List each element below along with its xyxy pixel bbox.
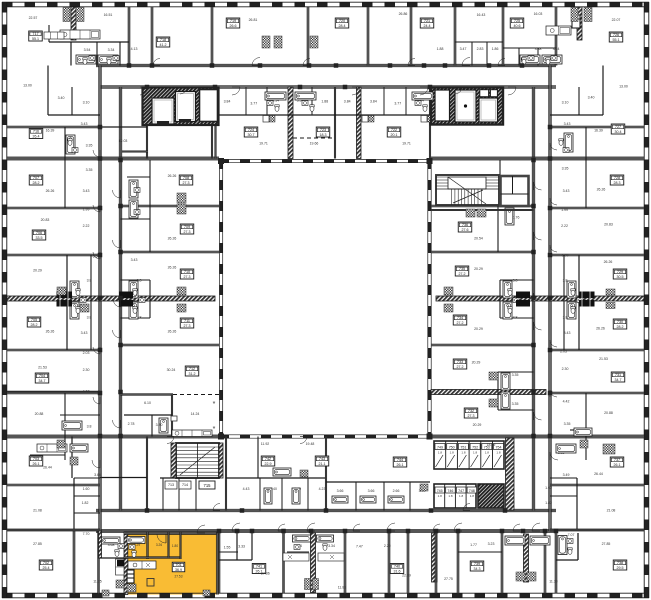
svg-text:731: 731 — [615, 373, 621, 377]
svg-text:1.55: 1.55 — [224, 546, 231, 550]
svg-text:20.88: 20.88 — [35, 412, 44, 416]
svg-text:725: 725 — [514, 19, 520, 23]
svg-text:26.81: 26.81 — [249, 18, 258, 22]
svg-text:716: 716 — [33, 130, 39, 134]
svg-text:3.35: 3.35 — [86, 168, 93, 172]
svg-text:3.10: 3.10 — [562, 101, 569, 105]
svg-text:1.88: 1.88 — [321, 100, 328, 104]
svg-text:20.29: 20.29 — [474, 327, 483, 331]
svg-text:7.70: 7.70 — [83, 532, 90, 536]
svg-text:7.47: 7.47 — [356, 545, 363, 549]
svg-text:726: 726 — [613, 33, 619, 37]
svg-text:40.6: 40.6 — [514, 24, 521, 28]
svg-text:3.35: 3.35 — [512, 373, 519, 377]
svg-text:3.47: 3.47 — [460, 47, 467, 51]
svg-text:34.7: 34.7 — [39, 379, 46, 383]
svg-text:3.40: 3.40 — [58, 96, 65, 100]
svg-text:34.7: 34.7 — [615, 378, 622, 382]
svg-text:709: 709 — [184, 225, 190, 229]
svg-text:27.3: 27.3 — [184, 275, 191, 279]
svg-text:27.2: 27.2 — [459, 272, 466, 276]
svg-text:19.48: 19.48 — [306, 442, 315, 446]
svg-text:734: 734 — [457, 316, 463, 320]
svg-text:3.43: 3.43 — [81, 331, 88, 335]
svg-text:55.1: 55.1 — [32, 37, 39, 41]
svg-text:41.2: 41.2 — [160, 43, 167, 47]
svg-text:20.88: 20.88 — [604, 411, 613, 415]
svg-text:13.00: 13.00 — [619, 85, 628, 89]
svg-text:1.99: 1.99 — [83, 208, 90, 212]
svg-text:31.6: 31.6 — [394, 570, 401, 574]
svg-text:708: 708 — [183, 176, 189, 180]
svg-text:4.23: 4.23 — [319, 487, 326, 491]
svg-text:16.39: 16.39 — [46, 129, 55, 133]
svg-text:24.4: 24.4 — [424, 24, 431, 28]
svg-text:1.76: 1.76 — [513, 216, 520, 220]
svg-text:2.22: 2.22 — [83, 224, 90, 228]
svg-text:3.26: 3.26 — [156, 543, 162, 547]
svg-text:20.29: 20.29 — [33, 269, 42, 273]
svg-text:707: 707 — [33, 176, 39, 180]
svg-text:710: 710 — [184, 270, 190, 274]
svg-text:26.44: 26.44 — [43, 466, 52, 470]
svg-text:31.2: 31.2 — [189, 372, 196, 376]
svg-text:3.84: 3.84 — [344, 100, 351, 104]
svg-text:14.24: 14.24 — [191, 412, 200, 416]
svg-text:30.7: 30.7 — [248, 133, 255, 137]
svg-text:1.8: 1.8 — [461, 450, 466, 454]
svg-text:11.92: 11.92 — [261, 442, 270, 446]
svg-text:28.2: 28.2 — [617, 325, 624, 329]
svg-text:33.5: 33.5 — [36, 236, 43, 240]
svg-text:18.59: 18.59 — [487, 443, 496, 447]
svg-text:2.78: 2.78 — [128, 422, 135, 426]
svg-text:724: 724 — [248, 128, 254, 132]
svg-text:1.8: 1.8 — [448, 494, 453, 498]
svg-text:727: 727 — [615, 125, 621, 129]
svg-text:27.36: 27.36 — [261, 572, 270, 576]
svg-text:3.49: 3.49 — [563, 473, 570, 477]
svg-text:1.80: 1.80 — [172, 544, 178, 548]
svg-text:749: 749 — [437, 445, 443, 449]
svg-text:1.8: 1.8 — [485, 450, 490, 454]
svg-text:3.8: 3.8 — [87, 316, 92, 320]
svg-text:3.8: 3.8 — [87, 279, 92, 283]
svg-text:738: 738 — [617, 561, 623, 565]
svg-text:742: 742 — [265, 457, 271, 461]
svg-text:30.24: 30.24 — [167, 368, 176, 372]
svg-text:3.84: 3.84 — [224, 100, 231, 104]
svg-text:717: 717 — [32, 32, 38, 36]
svg-text:1.8: 1.8 — [438, 494, 443, 498]
svg-text:1.60: 1.60 — [83, 487, 90, 491]
svg-text:20.1: 20.1 — [391, 133, 398, 137]
svg-text:26.26: 26.26 — [46, 189, 55, 193]
svg-text:22.09: 22.09 — [402, 574, 411, 578]
svg-text:26.26: 26.26 — [596, 327, 605, 331]
svg-text:6.09: 6.09 — [562, 254, 569, 258]
svg-text:27.3: 27.3 — [183, 181, 190, 185]
svg-text:1.86: 1.86 — [492, 47, 499, 51]
svg-text:714: 714 — [182, 483, 188, 487]
svg-text:26.44: 26.44 — [594, 472, 603, 476]
svg-text:746: 746 — [447, 489, 453, 493]
svg-text:26.26: 26.26 — [597, 188, 606, 192]
svg-text:*: * — [213, 426, 216, 433]
svg-text:26.4: 26.4 — [33, 135, 40, 139]
svg-text:20.29: 20.29 — [474, 267, 483, 271]
svg-text:3.33: 3.33 — [238, 545, 245, 549]
svg-text:713: 713 — [168, 483, 174, 487]
svg-text:736: 736 — [462, 223, 468, 227]
svg-text:22.57: 22.57 — [29, 16, 38, 20]
svg-text:748: 748 — [469, 489, 475, 493]
svg-text:2.03: 2.03 — [83, 351, 90, 355]
svg-text:2.22: 2.22 — [561, 224, 568, 228]
svg-text:4.13: 4.13 — [131, 47, 138, 51]
svg-text:751: 751 — [460, 445, 466, 449]
svg-text:27.2: 27.2 — [457, 321, 464, 325]
svg-text:16.43: 16.43 — [477, 13, 486, 17]
svg-text:712: 712 — [189, 367, 195, 371]
svg-text:27.3: 27.3 — [184, 324, 191, 328]
svg-text:13.00: 13.00 — [23, 84, 32, 88]
svg-text:3.35: 3.35 — [512, 402, 519, 406]
svg-text:11.81: 11.81 — [338, 586, 347, 590]
svg-text:21.53: 21.53 — [38, 366, 47, 370]
svg-text:3.24: 3.24 — [553, 47, 560, 51]
svg-text:730: 730 — [617, 320, 623, 324]
svg-text:704: 704 — [39, 374, 45, 378]
svg-text:36.9: 36.9 — [175, 568, 182, 572]
svg-text:26.6: 26.6 — [230, 24, 237, 28]
svg-text:728: 728 — [614, 176, 620, 180]
svg-text:26.26: 26.26 — [168, 174, 177, 178]
svg-text:3.35: 3.35 — [86, 144, 93, 148]
svg-text:1.8: 1.8 — [470, 494, 475, 498]
svg-text:2.83: 2.83 — [477, 47, 484, 51]
svg-text:28.2: 28.2 — [33, 181, 40, 185]
svg-text:26.1: 26.1 — [33, 462, 40, 466]
svg-text:3.43: 3.43 — [81, 122, 88, 126]
svg-text:20.29: 20.29 — [472, 361, 481, 365]
svg-text:3.80: 3.80 — [156, 423, 163, 427]
svg-text:22.9: 22.9 — [265, 462, 272, 466]
svg-text:20.54: 20.54 — [474, 237, 483, 241]
svg-text:28.2: 28.2 — [31, 323, 38, 327]
svg-text:1.92: 1.92 — [545, 486, 552, 490]
svg-text:1.8: 1.8 — [473, 450, 478, 454]
svg-text:3.35: 3.35 — [562, 167, 569, 171]
svg-text:20.83: 20.83 — [41, 218, 50, 222]
svg-text:744: 744 — [397, 458, 403, 462]
svg-text:3.8: 3.8 — [513, 316, 518, 320]
svg-text:27.2: 27.2 — [457, 365, 464, 369]
svg-text:735: 735 — [459, 267, 465, 271]
svg-text:16.03: 16.03 — [534, 12, 543, 16]
svg-text:27.75: 27.75 — [444, 577, 453, 581]
svg-text:16.39: 16.39 — [594, 129, 603, 133]
svg-text:722: 722 — [391, 128, 397, 132]
svg-text:26.1: 26.1 — [397, 463, 404, 467]
svg-text:4.42: 4.42 — [563, 400, 570, 404]
svg-text:11.25: 11.25 — [93, 580, 102, 584]
svg-text:721: 721 — [424, 19, 430, 23]
svg-text:740: 740 — [394, 565, 400, 569]
svg-text:28.4: 28.4 — [339, 24, 346, 28]
svg-text:3.8: 3.8 — [87, 425, 92, 429]
svg-text:741: 741 — [256, 565, 262, 569]
svg-text:19.66: 19.66 — [310, 142, 319, 146]
svg-text:4.43: 4.43 — [243, 487, 250, 491]
svg-text:739: 739 — [474, 562, 480, 566]
svg-text:3.43: 3.43 — [564, 331, 571, 335]
svg-text:26.26: 26.26 — [46, 330, 55, 334]
svg-text:7.07: 7.07 — [568, 533, 575, 537]
svg-text:719: 719 — [230, 19, 236, 23]
svg-text:27.53: 27.53 — [175, 575, 183, 579]
svg-text:3.77: 3.77 — [250, 101, 257, 105]
svg-text:11.30: 11.30 — [549, 580, 558, 584]
svg-text:21.1: 21.1 — [319, 462, 326, 466]
svg-text:21.08: 21.08 — [33, 509, 42, 513]
svg-text:1.82: 1.82 — [545, 501, 552, 505]
svg-text:1.77: 1.77 — [470, 543, 477, 547]
svg-text:20.83: 20.83 — [604, 223, 613, 227]
svg-text:1.82: 1.82 — [82, 501, 89, 505]
svg-text:3.10: 3.10 — [83, 101, 90, 105]
svg-text:723: 723 — [320, 128, 326, 132]
svg-text:3.54: 3.54 — [84, 48, 91, 52]
svg-text:729: 729 — [617, 270, 623, 274]
svg-text:3.23: 3.23 — [488, 542, 495, 546]
svg-text:1.8: 1.8 — [450, 450, 455, 454]
svg-text:6.10: 6.10 — [144, 401, 151, 405]
svg-text:3.43: 3.43 — [564, 122, 571, 126]
svg-text:3.34: 3.34 — [328, 544, 335, 548]
svg-text:3.40: 3.40 — [588, 96, 595, 100]
svg-text:18.3: 18.3 — [320, 133, 327, 137]
svg-text:3.66: 3.66 — [94, 473, 101, 477]
svg-text:3.38: 3.38 — [535, 47, 542, 51]
svg-text:750: 750 — [449, 445, 455, 449]
svg-text:27.6: 27.6 — [462, 228, 469, 232]
svg-text:27.3: 27.3 — [184, 230, 191, 234]
svg-text:3.66: 3.66 — [337, 489, 344, 493]
svg-text:26.26: 26.26 — [604, 260, 613, 264]
svg-text:27.85: 27.85 — [33, 542, 42, 546]
svg-text:3.43: 3.43 — [563, 189, 570, 193]
svg-text:26.26: 26.26 — [168, 266, 177, 270]
svg-text:701: 701 — [175, 563, 181, 567]
svg-text:754: 754 — [496, 445, 502, 449]
svg-text:3.43: 3.43 — [131, 258, 138, 262]
svg-text:747: 747 — [458, 489, 464, 493]
svg-text:743: 743 — [319, 457, 325, 461]
svg-text:706: 706 — [36, 231, 42, 235]
svg-text:4.67: 4.67 — [83, 390, 90, 394]
svg-text:30.4: 30.4 — [615, 130, 622, 134]
svg-text:27.3: 27.3 — [468, 414, 475, 418]
svg-text:29.5: 29.5 — [617, 566, 624, 570]
svg-text:702: 702 — [43, 561, 49, 565]
svg-text:1.8: 1.8 — [459, 494, 464, 498]
svg-text:2.30: 2.30 — [562, 367, 569, 371]
svg-text:1.8: 1.8 — [438, 450, 443, 454]
svg-text:2.03: 2.03 — [560, 350, 567, 354]
svg-text:21.53: 21.53 — [599, 357, 608, 361]
svg-text:711: 711 — [184, 319, 190, 323]
svg-text:2.20: 2.20 — [384, 544, 391, 548]
svg-text:733: 733 — [457, 360, 463, 364]
svg-text:3.35: 3.35 — [564, 422, 571, 426]
svg-text:3.66: 3.66 — [368, 489, 375, 493]
svg-text:2.30: 2.30 — [83, 368, 90, 372]
svg-text:22.07: 22.07 — [612, 18, 621, 22]
svg-text:27.85: 27.85 — [602, 542, 611, 546]
svg-text:26.86: 26.86 — [399, 12, 408, 16]
svg-text:26.26: 26.26 — [168, 237, 177, 241]
svg-text:3.8: 3.8 — [513, 279, 518, 283]
svg-text:25.4: 25.4 — [43, 566, 50, 570]
svg-text:752: 752 — [472, 445, 478, 449]
svg-text:30.5: 30.5 — [617, 275, 624, 279]
svg-text:2.66: 2.66 — [393, 489, 400, 493]
svg-text:21.08: 21.08 — [607, 509, 616, 513]
svg-text:26.1: 26.1 — [614, 463, 621, 467]
svg-text:718: 718 — [160, 38, 166, 42]
svg-text:1.99: 1.99 — [561, 208, 568, 212]
svg-text:28.3: 28.3 — [614, 181, 621, 185]
svg-text:737: 737 — [614, 458, 620, 462]
svg-text:1.8: 1.8 — [496, 450, 501, 454]
svg-text:19.71: 19.71 — [259, 142, 268, 146]
svg-text:1.88: 1.88 — [437, 47, 444, 51]
svg-text:715: 715 — [204, 483, 212, 488]
svg-text:3.43: 3.43 — [83, 189, 90, 193]
svg-text:3.77: 3.77 — [394, 101, 401, 105]
svg-text:34.3: 34.3 — [474, 567, 481, 571]
svg-text:705: 705 — [31, 318, 37, 322]
svg-text:12.03: 12.03 — [119, 139, 128, 143]
svg-text:3.34: 3.34 — [108, 48, 115, 52]
svg-text:703: 703 — [33, 457, 39, 461]
svg-text:20.29: 20.29 — [473, 423, 482, 427]
svg-text:19.71: 19.71 — [402, 142, 411, 146]
svg-text:*: * — [213, 401, 216, 408]
svg-text:732: 732 — [468, 409, 474, 413]
svg-text:16.51: 16.51 — [104, 13, 113, 17]
svg-text:26.26: 26.26 — [168, 330, 177, 334]
svg-text:55.1: 55.1 — [613, 38, 620, 42]
svg-text:3.84: 3.84 — [370, 100, 377, 104]
svg-text:720: 720 — [339, 19, 345, 23]
svg-text:745: 745 — [437, 489, 443, 493]
